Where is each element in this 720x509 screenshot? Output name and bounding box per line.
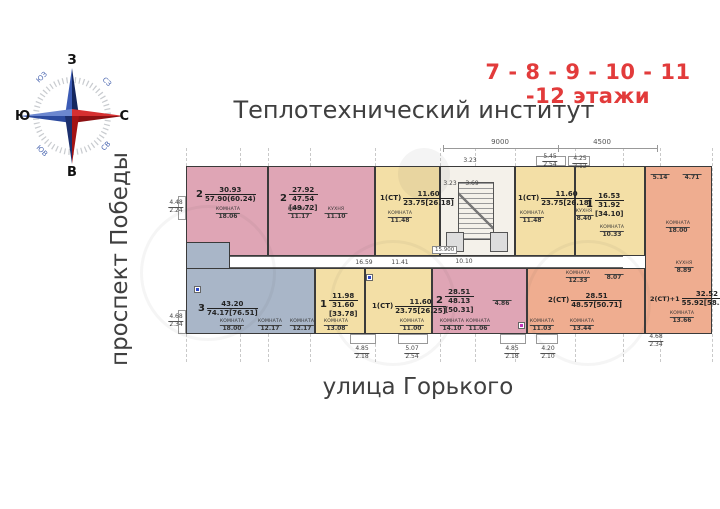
room-label: КОМНАТА14.10: [440, 320, 464, 333]
dimension-line: [443, 148, 658, 149]
apartment-number: 2(СТ)+1: [650, 296, 680, 303]
balcony-dim: 4.482.24: [168, 200, 183, 214]
dimension-tick: [657, 145, 658, 152]
room-area: 11.17: [288, 213, 312, 221]
corridor-dim: 16.59: [355, 259, 372, 266]
compass-east-label: В: [67, 165, 77, 177]
apartment-number: 1(СТ): [518, 195, 539, 202]
room-label: КУХНЯ11.10: [325, 208, 348, 221]
dimension-tick: [443, 145, 444, 152]
total-area: 31.60: [329, 301, 358, 309]
balcony-dim: 4.852.18: [504, 346, 519, 360]
room-label: КОМНАТА12.17: [290, 320, 314, 333]
room-area: 11.48: [520, 217, 544, 225]
apartment-b1-upper: [186, 242, 230, 268]
room-label: КОМНАТА12.17: [258, 320, 282, 333]
room-label: КОМНАТА11.48: [520, 212, 544, 225]
corridor-dim: 10.10: [455, 258, 472, 265]
total-area: 57.90(60.24): [205, 195, 256, 203]
compass-nw-label: СЗ: [101, 76, 114, 89]
street-bottom-label: улица Горького: [278, 374, 558, 400]
corridor: [230, 256, 623, 268]
room-area: 11.00: [400, 325, 424, 333]
room-label: 4.71: [683, 174, 702, 182]
total-area: 48.13: [445, 297, 474, 305]
living-area: 28.51: [445, 288, 474, 297]
room-label: КОМНАТА13.66: [670, 312, 694, 325]
room-label: КУХНЯ8.89: [675, 262, 694, 275]
room-area: 13.44: [570, 325, 594, 333]
dim-b: 2.12: [572, 164, 587, 171]
apartment-label-b2: 1 11.9831.60[33.78]: [320, 292, 358, 318]
living-area: 11.60: [541, 190, 592, 199]
room-label: КОМНАТА10.33: [600, 226, 624, 239]
room-area: 11.06: [466, 325, 490, 333]
room-area: 18.00: [220, 325, 244, 333]
compass-west-label: З: [67, 53, 76, 68]
balcony: [536, 334, 558, 344]
apartment-label-t1: 2 30.9357.90(60.24): [196, 186, 256, 204]
balcony: [350, 334, 376, 344]
room-label: КОМНАТА13.08: [324, 320, 348, 333]
room-area: 11.03: [530, 325, 554, 333]
street-left-label: проспект Победы: [107, 144, 137, 374]
living-area: 16.53: [595, 192, 624, 201]
room-area: 4.86: [493, 300, 512, 308]
room-label: 4.86: [493, 300, 512, 308]
room-label: КОМНАТА11.03: [530, 320, 554, 333]
balcony-dim: 4.202.10: [540, 346, 555, 360]
room-label: КОМНАТА13.44: [570, 320, 594, 333]
apartment-number: 1: [320, 300, 327, 310]
apartment-number: 2(СТ): [548, 297, 569, 304]
living-area: 43.20: [207, 300, 258, 309]
room-label: КУХНЯ8.40: [575, 210, 594, 223]
dim-b: 2.24: [168, 208, 183, 215]
total-area: 23.75[26.18]: [403, 199, 454, 207]
apartment-label-t3: 1(СТ) 11.6023.75[26.18]: [380, 190, 454, 208]
room-label: КОМНАТА18.00: [220, 320, 244, 333]
core-dim: 3.23: [463, 157, 476, 164]
room-area: 5.14: [651, 174, 670, 182]
room-area: 13.66: [670, 317, 694, 325]
room-label: КОМНАТА18.06: [216, 208, 240, 221]
appliance-icon: [194, 286, 201, 293]
balcony-dim: 4.682.34: [168, 314, 183, 328]
apartment-label-b5: 2(СТ) 28.5148.57[50.71]: [548, 292, 622, 310]
dim-b: 2.54: [542, 162, 557, 169]
dim-b: 2.34: [648, 342, 663, 349]
total-area: 74.17[76.51]: [207, 309, 258, 317]
apartment-label-t4: 1(СТ) 11.6023.75[26.18]: [518, 190, 592, 208]
balcony-dim: 4.682.34: [648, 334, 663, 348]
apartment-r1: [645, 166, 712, 334]
apartment-label-r1: 2(СТ)+1 32.5255.92[58.26]: [650, 290, 720, 308]
apartment-label-b1: 3 43.2074.17[76.51]: [198, 300, 258, 318]
total-area: 48.57[50.71]: [571, 301, 622, 309]
balcony: [500, 334, 526, 344]
apartment-number: 3: [198, 304, 205, 314]
balcony-dim: 4.852.18: [354, 346, 369, 360]
dim-b: 2.18: [504, 354, 519, 361]
compass-north-label: С: [119, 109, 129, 124]
core-dim: 3.23: [443, 180, 456, 187]
dim-b: 2.34: [168, 322, 183, 329]
room-area: 13.08: [324, 325, 348, 333]
compass-south-label: Ю: [15, 109, 30, 124]
room-label: КОМНАТА11.06: [466, 320, 490, 333]
corridor-dim: 11.41: [391, 259, 408, 266]
apartment-label-b4: 2 28.5148.13[50.31]: [436, 288, 474, 314]
compass-sw-label: ЮЗ: [35, 70, 50, 85]
total-area-alt: [33.78]: [329, 310, 358, 318]
total-area-alt: [50.31]: [445, 306, 474, 314]
total-area: 23.75[26.18]: [541, 199, 592, 207]
room-area: 11.48: [388, 217, 412, 225]
grid-line: [712, 148, 713, 362]
dim-b: 2.18: [354, 354, 369, 361]
total-area: 55.92[58.26]: [682, 299, 720, 307]
dim-b: 2.10: [540, 354, 555, 361]
floor-plan-page: З С Ю В ЮЗ СЗ ЮВ СВ 7 - 8 - 9 - 10 - 11 …: [0, 0, 720, 509]
room-label: 8.07: [605, 274, 624, 282]
appliance-icon: [366, 274, 373, 281]
apartment-label-b3: 1(СТ) 11.6023.75[26.25]: [372, 298, 446, 316]
room-area: 4.71: [683, 174, 702, 182]
balcony: [398, 334, 428, 344]
room-area: 8.07: [605, 274, 624, 282]
room-area: 8.40: [575, 215, 594, 223]
living-area: 32.52: [682, 290, 720, 299]
balcony-dim: 4.252.12: [572, 156, 587, 170]
elevator: [490, 232, 508, 252]
living-area: 28.51: [571, 292, 622, 301]
room-label: КОМНАТА11.00: [400, 320, 424, 333]
appliance-icon: [518, 322, 525, 329]
apartment-number: 1(СТ): [380, 195, 401, 202]
dimension-9000: 9000: [491, 138, 509, 146]
dimension-4500: 4500: [593, 138, 611, 146]
elevation-mark: 15.900: [432, 246, 457, 254]
room-label: КОМНАТА18.00: [666, 222, 690, 235]
compass-se-label: ЮВ: [35, 144, 50, 159]
living-area: 27.92: [289, 186, 318, 195]
dimension-tick: [558, 145, 559, 152]
living-area: 11.98: [329, 292, 358, 301]
room-area: 14.10: [440, 325, 464, 333]
room-area: 12.17: [258, 325, 282, 333]
apartment-number: 2: [196, 190, 203, 200]
living-area: 30.93: [205, 186, 256, 195]
room-area: 12.33: [566, 277, 590, 285]
room-label: 5.14: [651, 174, 670, 182]
room-area: 18.00: [666, 227, 690, 235]
total-area: 31.92: [595, 201, 624, 209]
room-area: 18.06: [216, 213, 240, 221]
apartment-number: 2: [280, 194, 287, 204]
building-title: Теплотехнический институт: [228, 96, 600, 124]
room-area: 12.17: [290, 325, 314, 333]
apartment-number: 2: [436, 296, 443, 306]
balcony-dim: 5.072.54: [404, 346, 419, 360]
room-label: КОМНАТА11.48: [388, 212, 412, 225]
room-area: 11.10: [325, 213, 348, 221]
balcony-dim: 5.452.54: [542, 154, 557, 168]
core-dim: 3.69: [465, 180, 478, 187]
room-area: 8.89: [675, 267, 694, 275]
total-area: 47.54: [289, 195, 318, 203]
room-label: КОМНАТА11.17: [288, 208, 312, 221]
apartment-number: 1(СТ): [372, 303, 393, 310]
room-area: 10.33: [600, 231, 624, 239]
living-area: 11.60: [403, 190, 454, 199]
total-area-alt: [34.10]: [595, 210, 624, 218]
room-label: КОМНАТА12.33: [566, 272, 590, 285]
dim-b: 2.54: [404, 354, 419, 361]
